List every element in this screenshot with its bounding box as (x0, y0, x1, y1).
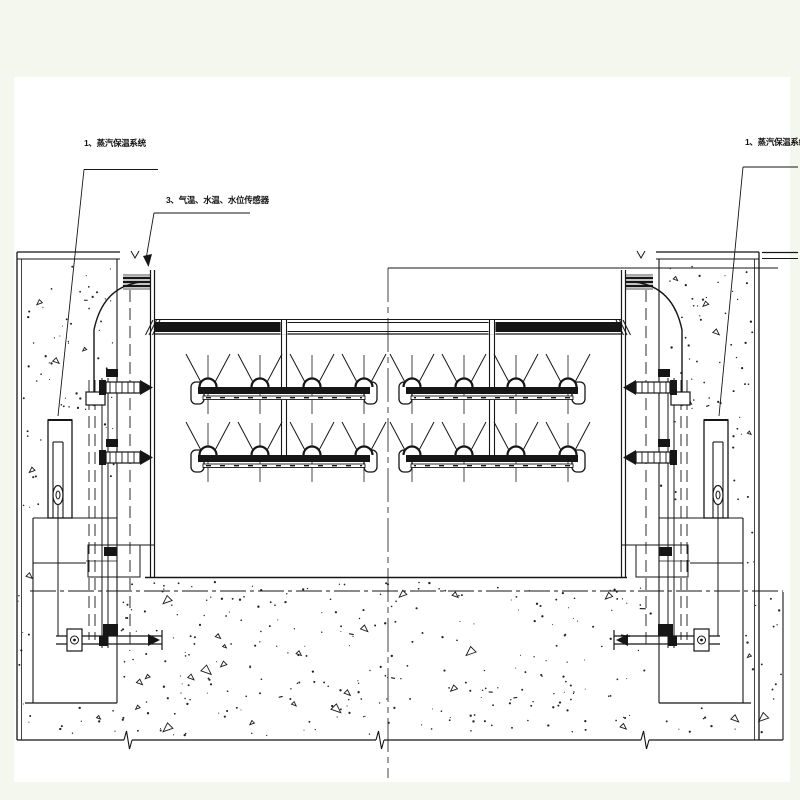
cad-drawing: 1、蒸汽保温系统 3、气温、水温、水位传感器 1、蒸汽保温系统 (0, 0, 800, 800)
label-sensors: 3、气温、水温、水位传感器 (166, 196, 269, 205)
drawing-canvas (0, 0, 800, 800)
label-steam-system-left: 1、蒸汽保温系统 (84, 139, 146, 148)
label-steam-system-right: 1、蒸汽保温系统 (745, 138, 800, 147)
